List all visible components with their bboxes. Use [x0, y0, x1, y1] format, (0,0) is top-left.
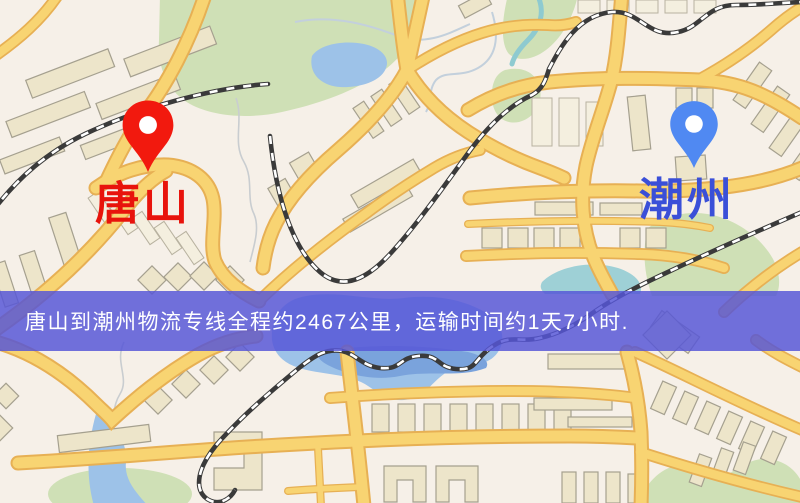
logistics-route-map: 唐山 潮州 唐山到潮州物流专线全程约2467公里，运输时间约1天7小时. — [0, 0, 800, 503]
route-info-text: 唐山到潮州物流专线全程约2467公里，运输时间约1天7小时. — [25, 306, 629, 336]
route-info-banner: 唐山到潮州物流专线全程约2467公里，运输时间约1天7小时. — [0, 291, 800, 351]
destination-label: 潮州 — [639, 175, 735, 225]
origin-label: 唐山 — [95, 178, 191, 229]
map-canvas: 唐山 潮州 — [0, 0, 800, 503]
